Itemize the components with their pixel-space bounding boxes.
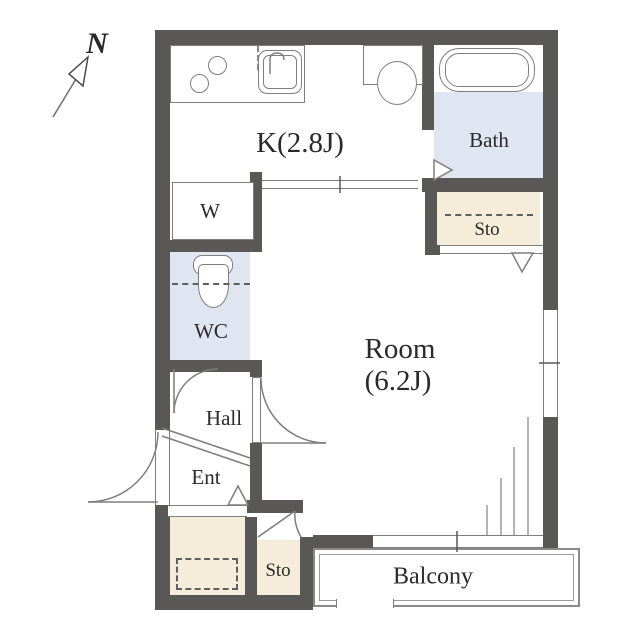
hall-label: Hall (206, 407, 242, 429)
main-room-label-line2: (6.2J) (365, 366, 432, 396)
washer-label: W (200, 200, 220, 222)
north-arrow-head-icon (69, 57, 88, 86)
entrance-step-line (162, 436, 250, 466)
entrance-door-arc (88, 432, 158, 502)
storage-bottom-door-leaf (258, 511, 295, 537)
faucet-icon (270, 53, 284, 74)
entrance-step-line (162, 428, 250, 458)
floor-plan: N K(2.8J) Bath Sto W WC Hall Ent Sto Roo… (0, 0, 640, 640)
storage-bottom-door-arc (295, 511, 301, 537)
balcony-label: Balcony (393, 564, 473, 589)
compass-north-label: N (86, 27, 108, 61)
bath-label: Bath (469, 129, 509, 151)
bath-door-marker-icon (434, 160, 452, 180)
hall-room-door-arc (261, 378, 326, 443)
north-arrow-shaft (53, 79, 76, 117)
entrance-door-marker-icon (228, 486, 248, 505)
linework-overlay (0, 0, 640, 640)
storage-bottom-label: Sto (265, 561, 290, 581)
main-room-label-line1: Room (365, 334, 436, 364)
storage-top-label: Sto (474, 220, 499, 240)
kitchen-label: K(2.8J) (256, 128, 344, 158)
wc-label: WC (194, 320, 228, 342)
storage-top-door-marker-icon (512, 253, 533, 272)
entrance-label: Ent (191, 466, 220, 488)
